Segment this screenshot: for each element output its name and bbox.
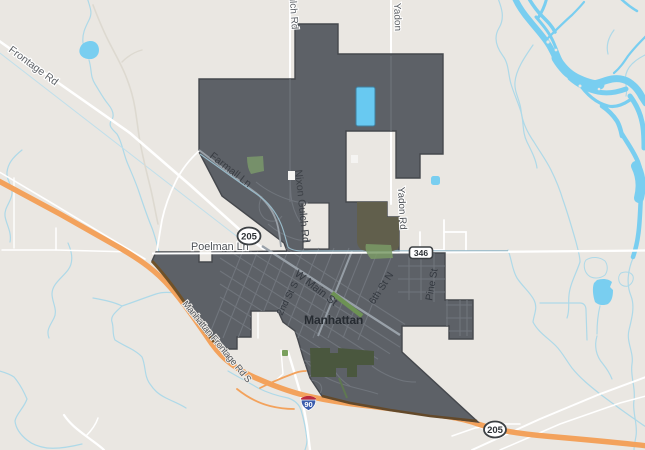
svg-text:Manhattan: Manhattan — [304, 313, 363, 327]
svg-text:Yadon: Yadon — [391, 3, 403, 32]
svg-text:Poelman Ln: Poelman Ln — [191, 241, 249, 253]
svg-text:346: 346 — [414, 248, 428, 258]
svg-text:205: 205 — [487, 425, 504, 436]
svg-text:Yadon Rd: Yadon Rd — [395, 187, 408, 230]
svg-text:90: 90 — [304, 400, 312, 409]
svg-text:205: 205 — [241, 232, 258, 243]
